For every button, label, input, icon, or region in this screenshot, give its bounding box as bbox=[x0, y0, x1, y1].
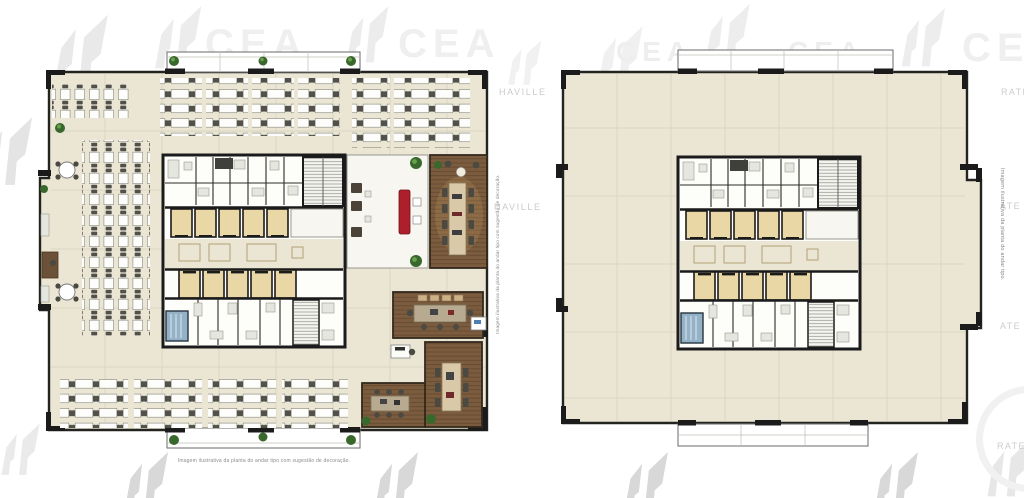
building-core bbox=[163, 155, 345, 347]
conference-table bbox=[449, 183, 466, 255]
stairs-bottom bbox=[293, 300, 319, 345]
elevator-lobby bbox=[165, 239, 343, 269]
logo-flame-icon bbox=[0, 116, 38, 188]
lobby-lounge bbox=[347, 155, 428, 268]
logo-flame-icon bbox=[866, 452, 930, 498]
building-core-copy bbox=[678, 157, 860, 349]
logo-flame-icon bbox=[616, 452, 680, 498]
floor-plan-unfurnished bbox=[545, 44, 1010, 458]
right-plan-side-caption: Imagem ilustrativa da planta do andar ti… bbox=[999, 168, 1005, 338]
right-plan-bottom-balcony bbox=[678, 424, 868, 446]
left-plan-side-caption: Imagem ilustrativa da planta do andar ti… bbox=[495, 170, 500, 334]
elevator-row-top bbox=[171, 209, 288, 237]
floor-plan-furnished bbox=[36, 44, 512, 464]
stairs-top bbox=[303, 157, 343, 206]
side-desk bbox=[471, 317, 486, 330]
floor-plans-canvas: CEA CEA CEA CEA CEA HAVILLE HAVILLE HAVI… bbox=[0, 0, 1024, 498]
right-plan-top-balcony bbox=[678, 50, 893, 71]
elevator-row-bottom bbox=[179, 270, 296, 298]
red-sofa bbox=[399, 190, 410, 234]
meeting-room-mid bbox=[393, 292, 483, 338]
pantry-room bbox=[362, 383, 426, 427]
meeting-room-large bbox=[430, 155, 487, 268]
left-plan-caption: Imagem ilustrativa da planta do andar ti… bbox=[150, 458, 378, 464]
water-reservoir bbox=[166, 311, 188, 341]
meeting-room-bottom bbox=[425, 342, 482, 427]
